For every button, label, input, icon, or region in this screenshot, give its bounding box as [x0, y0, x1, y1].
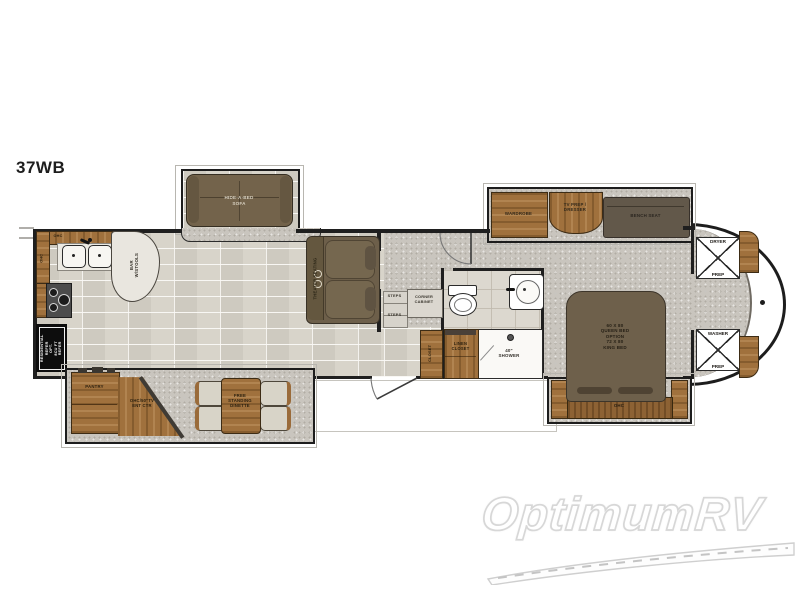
- optimumrv-watermark: OptimumRV: [482, 486, 800, 586]
- watermark-text: OptimumRV: [480, 486, 800, 541]
- entry-door-swing: [371, 378, 377, 399]
- entry-door: [377, 378, 417, 399]
- rv-floorplan-page: 37WB HIDE-A-BED SOFA WARDROBE TV PREP / …: [0, 0, 800, 600]
- bedroom-door-swing: [440, 233, 471, 264]
- watermark-road-icon: [482, 539, 800, 585]
